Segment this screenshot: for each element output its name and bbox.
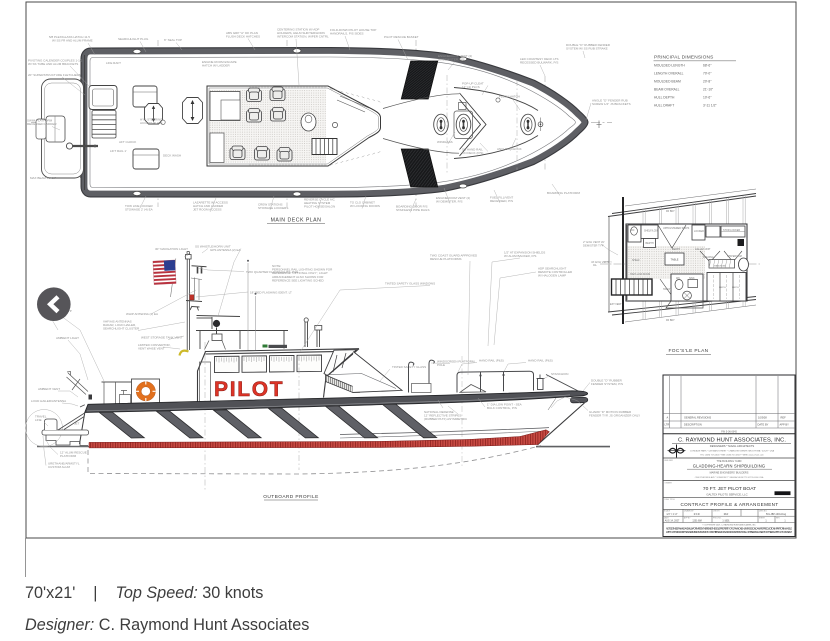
svg-text:MOULDED LENGTH: MOULDED LENGTH	[654, 64, 685, 68]
svg-text:1-1601: 1-1601	[722, 520, 730, 522]
svg-text:AMBIENT VENT: AMBIENT VENT	[38, 387, 60, 391]
svg-text:BULK CONTROL, P/S: BULK CONTROL, P/S	[487, 406, 517, 410]
svg-text:STOR LOCKER: STOR LOCKER	[723, 229, 740, 232]
svg-text:RECESSED LADDER: RECESSED LADDER	[27, 122, 57, 126]
svg-text:CORDAGE PARK * 549 MAIN STREET: CORDAGE PARK * 549 MAIN STREET * CHARLES…	[690, 449, 775, 452]
svg-text:ONE RIVERSIDE AVE * SOMERSET *: ONE RIVERSIDE AVE * SOMERSET * MASSACHUS…	[695, 476, 764, 479]
svg-text:RECESSED BULWARK, P/S: RECESSED BULWARK, P/S	[520, 61, 558, 65]
svg-text:HAND RAIL (P&S): HAND RAIL (P&S)	[479, 359, 504, 363]
svg-text:© COPYRIGHT 2007, C. RAYMOND H: © COPYRIGHT 2007, C. RAYMOND HUNT ASSOCI…	[702, 523, 756, 526]
svg-text:OWNER: OWNER	[665, 482, 673, 484]
svg-text:TABLE: TABLE	[670, 258, 678, 262]
svg-text:FR BDY: FR BDY	[666, 210, 675, 213]
svg-text:WITHOUT PRIOR WRITTEN PERMISSI: WITHOUT PRIOR WRITTEN PERMISSION IS STRI…	[666, 531, 792, 534]
svg-text:PILOT: PILOT	[214, 378, 284, 401]
svg-text:STAINLESS PIPE RAILS: STAINLESS PIPE RAILS	[396, 208, 429, 212]
svg-text:DECK WASH: DECK WASH	[163, 154, 181, 158]
svg-text:SYSTEM W/ SS RUB STRAKE: SYSTEM W/ SS RUB STRAKE	[566, 47, 608, 51]
svg-text:DESCRIPTION: DESCRIPTION	[684, 423, 702, 427]
svg-text:PRINCIPAL DIMENSIONS: PRINCIPAL DIMENSIONS	[654, 55, 714, 61]
svg-text:LTR: LTR	[665, 423, 670, 427]
svg-text:DEMISTER TYP: DEMISTER TYP	[583, 244, 604, 248]
svg-text:Designer: C. Raymond Hunt Asso: Designer: C. Raymond Hunt Associates	[25, 616, 309, 634]
svg-text:12" (4) PLCS: 12" (4) PLCS	[462, 85, 480, 89]
svg-text:FOLDING: FOLDING	[703, 256, 714, 259]
svg-text:POLE: POLE	[437, 363, 445, 367]
svg-text:TINTED SAFETY GLASS WINDOWS: TINTED SAFETY GLASS WINDOWS	[385, 282, 435, 286]
svg-text:TEL: (508) 717-0600 * FAX: (50: TEL: (508) 717-0600 * FAX: (508) 717-060…	[700, 453, 764, 456]
svg-text:LENGTH OVERALL: LENGTH OVERALL	[654, 72, 684, 76]
svg-text:SCALE: SCALE	[664, 510, 671, 513]
svg-text:RLR: RLR	[724, 514, 729, 516]
svg-text:SHELF: SHELF	[632, 259, 640, 262]
svg-text:PILOT RESCUE BASKET: PILOT RESCUE BASKET	[384, 35, 419, 39]
svg-text:SS WHISTLE/HORN UNIT: SS WHISTLE/HORN UNIT	[195, 245, 231, 249]
svg-text:GALLEY UNIT: GALLEY UNIT	[695, 248, 711, 251]
svg-text:18" RED FLASHING IDENT. LT: 18" RED FLASHING IDENT. LT	[250, 291, 292, 295]
svg-text:GLADDING-HEARN SHIPBUILDING: GLADDING-HEARN SHIPBUILDING	[693, 464, 766, 469]
svg-text:FENDER TYP, JS ORGANIZER ONLY: FENDER TYP, JS ORGANIZER ONLY	[589, 414, 640, 418]
svg-text:1201-BM: 1201-BM	[692, 520, 701, 522]
svg-text:BERTH: BERTH	[732, 287, 739, 289]
svg-text:BERTH: BERTH	[646, 242, 654, 245]
svg-text:HANDRAILS, P/S SIDES: HANDRAILS, P/S SIDES	[330, 32, 364, 36]
svg-text:1/4" = 1'-0": 1/4" = 1'-0"	[666, 514, 677, 516]
svg-text:W/ SS TUBE AND ALUM BRACKETS: W/ SS TUBE AND ALUM BRACKETS	[28, 62, 78, 66]
svg-text:CONTRACT PROFILE & ARRANGEMENT: CONTRACT PROFILE & ARRANGEMENT	[681, 502, 779, 507]
svg-text:JET ROOM ACCESS: JET ROOM ACCESS	[193, 208, 221, 212]
svg-text:AUG 14, 2007: AUG 14, 2007	[665, 519, 680, 522]
svg-text:70'x21' | Top Speed: 30: 70'x21' | Top Speed: 30 knots	[25, 584, 263, 602]
svg-text:GPS ANTENNA (2) EA: GPS ANTENNA (2) EA	[210, 248, 241, 252]
svg-text:SCREW 1/4" JS BRACKETS: SCREW 1/4" JS BRACKETS	[592, 102, 631, 106]
svg-text:BEAM OVERALL: BEAM OVERALL	[654, 88, 680, 92]
svg-text:WARDROBE: WARDROBE	[714, 265, 726, 268]
svg-text:LINE: LINE	[35, 418, 42, 422]
svg-text:BERTH: BERTH	[672, 248, 680, 251]
svg-text:FLUSH DECK HATCHES: FLUSH DECK HATCHES	[226, 35, 260, 39]
svg-text:BERTH: BERTH	[719, 287, 726, 289]
svg-text:HULL DEPTH: HULL DEPTH	[654, 96, 675, 100]
svg-text:PROJ NO.: PROJ NO.	[713, 517, 722, 519]
svg-text:ACCESS PLATE: ACCESS PLATE	[140, 121, 162, 125]
svg-text:GENERAL REVISIONS: GENERAL REVISIONS	[684, 415, 711, 419]
svg-text:RESCUE PLATFORMS: RESCUE PLATFORMS	[430, 257, 461, 261]
svg-text:SEARCHLIGHT CLUSTER: SEARCHLIGHT CLUSTER	[103, 327, 140, 331]
svg-text:STANCHION: STANCHION	[551, 372, 568, 376]
svg-text:DWG TITLE: DWG TITLE	[665, 499, 676, 501]
svg-text:DATE BY: DATE BY	[758, 423, 769, 427]
svg-text:CL: CL	[593, 263, 597, 267]
svg-text:21'-10": 21'-10"	[703, 88, 714, 92]
svg-text:A: A	[667, 415, 669, 419]
svg-text:HAND RAIL (P&S): HAND RAIL (P&S)	[528, 359, 553, 363]
svg-text:W/ SS FR AND ALUM FRAME: W/ SS FR AND ALUM FRAME	[52, 39, 93, 43]
svg-text:MAX BEAM 21'-10": MAX BEAM 21'-10"	[30, 176, 56, 180]
svg-text:STOWAGE LOCKERS: STOWAGE LOCKERS	[258, 206, 288, 210]
svg-text:WC: WC	[676, 277, 680, 280]
svg-text:BUILDER: BUILDER	[665, 460, 674, 462]
svg-text:LIFE RAFT: LIFE RAFT	[106, 61, 121, 65]
svg-text:HULL DRAFT: HULL DRAFT	[654, 104, 674, 108]
svg-text:OUTBOARD PROFILE: OUTBOARD PROFILE	[263, 494, 318, 500]
svg-text:MOULDED BEAM: MOULDED BEAM	[654, 80, 681, 84]
svg-text:SHELF/LCKR: SHELF/LCKR	[644, 230, 659, 233]
svg-text:DRAWN BY: DRAWN BY	[684, 510, 694, 513]
svg-text:PILOT HOUSE/SALON: PILOT HOUSE/SALON	[304, 205, 335, 209]
svg-text:CHK BY: CHK BY	[713, 511, 720, 513]
svg-text:STATEROOM: STATEROOM	[727, 255, 742, 258]
svg-text:R.F.R.: R.F.R.	[694, 514, 701, 516]
svg-text:VENT WHSE VENT: VENT WHSE VENT	[138, 347, 165, 351]
svg-text:P/N 5-06-0645: P/N 5-06-0645	[721, 430, 737, 433]
svg-text:501-JBP-1001-Dwg: 501-JBP-1001-Dwg	[766, 514, 787, 516]
svg-text:20" SUPERSTRUCTURE FLETCHERS: 20" SUPERSTRUCTURE FLETCHERS	[28, 73, 81, 77]
svg-text:(RUBBER PLTF) ASYMMETRIC: (RUBBER PLTF) ASYMMETRIC	[424, 417, 468, 421]
svg-text:FLUSH HATCH: FLUSH HATCH	[499, 95, 520, 99]
svg-text:ANCHOR CHOCK: ANCHOR CHOCK	[497, 147, 522, 151]
svg-text:6" SEAL TOP: 6" SEAL TOP	[164, 38, 182, 42]
svg-text:JET: JET	[74, 422, 80, 426]
svg-text:WC: WC	[631, 229, 635, 232]
svg-text:68'-6": 68'-6"	[703, 64, 712, 68]
svg-text:10/3/08: 10/3/08	[758, 415, 767, 419]
svg-text:CUSTOM ALUM: CUSTOM ALUM	[48, 465, 70, 469]
svg-text:3'-11 1/2": 3'-11 1/2"	[703, 104, 717, 108]
svg-text:UPHOLSTERED SEATS: UPHOLSTERED SEATS	[663, 227, 690, 230]
svg-text:70'-0": 70'-0"	[703, 72, 712, 76]
svg-text:LIFT RAIL 1': LIFT RAIL 1'	[110, 149, 127, 153]
svg-text:70 FT. JET PILOT BOAT: 70 FT. JET PILOT BOAT	[703, 486, 756, 492]
svg-text:REFERENCE SEE LIGHTING SCHED: REFERENCE SEE LIGHTING SCHED	[272, 278, 325, 282]
svg-text:APP BY: APP BY	[684, 516, 691, 519]
svg-text:LOUD HAILER/ANTENNA: LOUD HAILER/ANTENNA	[31, 399, 66, 403]
svg-text:FENDER SYSTEM, P/S: FENDER SYSTEM, P/S	[591, 382, 623, 386]
svg-text:MAIN DECK PLAN: MAIN DECK PLAN	[271, 218, 322, 224]
svg-text:ON DECK (P/S): ON DECK (P/S)	[462, 151, 483, 155]
svg-text:PLATFORM: PLATFORM	[60, 454, 77, 458]
svg-text:30" NAVIGATION LIGHT: 30" NAVIGATION LIGHT	[155, 247, 188, 251]
svg-text:HATCH W/ LADDER: HATCH W/ LADDER	[202, 64, 230, 68]
svg-text:TINTED SAFETY GLASS: TINTED SAFETY GLASS	[392, 365, 426, 369]
svg-text:REF: REF	[781, 415, 787, 419]
svg-text:SINK: SINK	[689, 277, 695, 280]
svg-text:HIGH-LOW DOOR: HIGH-LOW DOOR	[630, 273, 650, 276]
svg-text:RECESSED, P/S: RECESSED, P/S	[490, 199, 513, 203]
svg-text:INTERCOM STATION, WIPER CNTRL: INTERCOM STATION, WIPER CNTRL	[277, 35, 329, 39]
svg-text:SHEET: SHEET	[759, 517, 766, 519]
svg-text:DWG NO.: DWG NO.	[759, 511, 768, 513]
svg-text:STOWAGE 2' (4) EA: STOWAGE 2' (4) EA	[125, 208, 153, 212]
svg-text:W/ ALUM BACKER, P/S: W/ ALUM BACKER, P/S	[504, 254, 536, 258]
svg-text:SEARCHLIGHT PLUG: SEARCHLIGHT PLUG	[118, 37, 149, 41]
svg-text:HATCH: HATCH	[663, 288, 671, 291]
svg-text:W/ LOCKING DOORS: W/ LOCKING DOORS	[350, 204, 380, 208]
svg-text:EXT VENT: EXT VENT	[610, 303, 622, 306]
svg-text:W/ DEMISTER, P/S: W/ DEMISTER, P/S	[438, 58, 465, 62]
svg-text:WHIP ANTENNA (2) EA: WHIP ANTENNA (2) EA	[126, 312, 158, 316]
svg-text:DATE: DATE	[664, 516, 669, 519]
svg-text:DESIGNERS * NAVAL ARCHITECTS: DESIGNERS * NAVAL ARCHITECTS	[710, 444, 755, 448]
svg-text:FR BDY: FR BDY	[666, 319, 675, 322]
svg-text:WINDLASS: WINDLASS	[437, 140, 453, 144]
svg-text:10'-6": 10'-6"	[703, 96, 712, 100]
svg-text:FOC'S'LE PLAN: FOC'S'LE PLAN	[668, 348, 708, 354]
svg-text:APP BY: APP BY	[780, 423, 790, 427]
svg-text:W/ HALOGEN LAMP: W/ HALOGEN LAMP	[538, 274, 566, 278]
svg-text:C. RAYMOND HUNT ASSOCIATES, IN: C. RAYMOND HUNT ASSOCIATES, INC.	[678, 438, 786, 444]
svg-text:BOARDING PLATFORM: BOARDING PLATFORM	[547, 191, 580, 195]
svg-text:NOTICE: THIS DRAWING AND ALL I: NOTICE: THIS DRAWING AND ALL INFORMATION…	[666, 528, 792, 531]
svg-text:AFT CHOCK: AFT CHOCK	[119, 140, 136, 144]
svg-text:20'-8": 20'-8"	[703, 80, 712, 84]
svg-text:GALTEX PILOTS SERVICE, LLC: GALTEX PILOTS SERVICE, LLC	[706, 492, 747, 496]
svg-text:THE BUILDING YARD: THE BUILDING YARD	[717, 460, 742, 463]
svg-text:AMBIENT LIGHT: AMBIENT LIGHT	[56, 336, 79, 340]
svg-text:MARINE ENGINEERS' BUILDERS: MARINE ENGINEERS' BUILDERS	[710, 472, 749, 475]
svg-text:LOCKER: LOCKER	[694, 230, 704, 233]
